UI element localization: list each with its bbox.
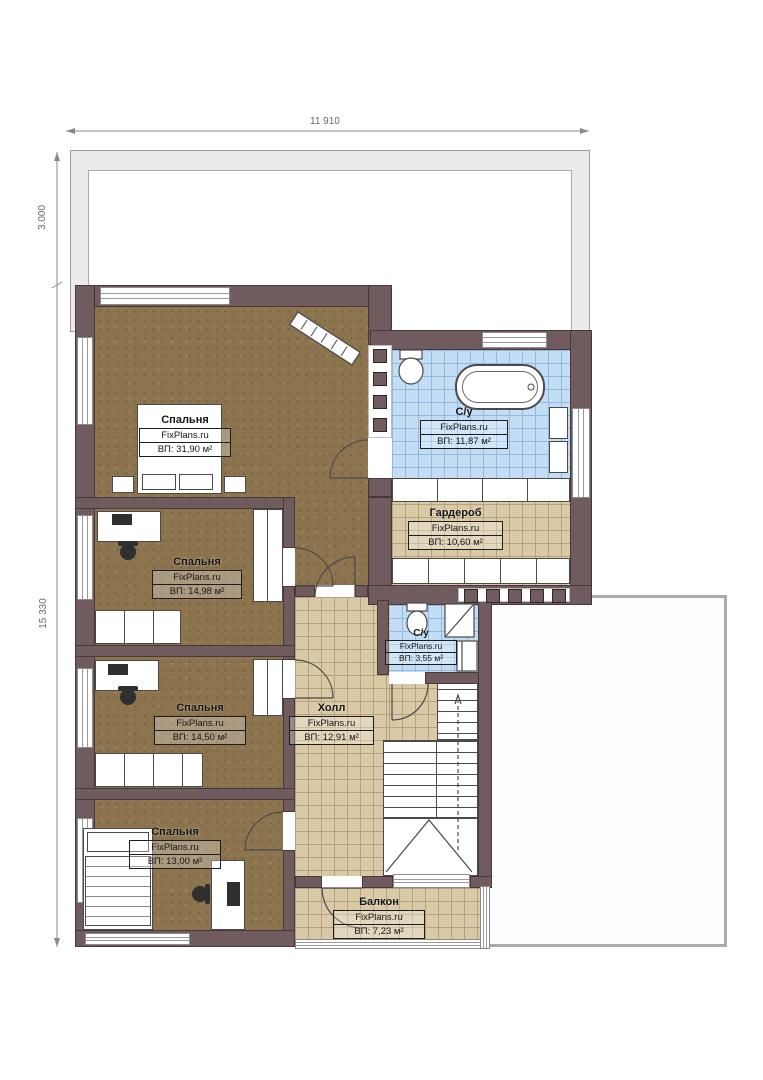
door-opening-bedroom-4 bbox=[283, 812, 295, 850]
dimension-left-lower-label: 15 330 bbox=[38, 598, 49, 629]
wall-bed3-bed4 bbox=[75, 788, 295, 800]
floor-bedroom-1 bbox=[95, 307, 368, 497]
room-area: ВП: 7,23 м² bbox=[334, 924, 424, 938]
wardrobe-row-top bbox=[392, 478, 570, 502]
room-name: С/у bbox=[385, 628, 457, 639]
window-bathroom-1-right bbox=[572, 408, 590, 498]
vent-icon bbox=[486, 589, 500, 603]
window-bedroom-3-left bbox=[77, 668, 93, 748]
wall-bed2-bed3 bbox=[75, 645, 295, 657]
room-label-bathroom-1: С/у FixPlans.ru ВП: 11,87 м² bbox=[420, 406, 508, 449]
room-name: Спальня bbox=[154, 702, 246, 715]
room-name: Спальня bbox=[129, 826, 221, 839]
room-info-box: FixPlans.ru ВП: 10,60 м² bbox=[408, 521, 503, 550]
dresser bbox=[95, 753, 203, 787]
room-label-wardrobe: Гардероб FixPlans.ru ВП: 10,60 м² bbox=[408, 507, 503, 550]
wall-balcony-b bbox=[362, 876, 393, 888]
stairs-upper-flight bbox=[437, 677, 478, 740]
room-area: ВП: 13,00 м² bbox=[130, 854, 220, 868]
wall-nook-b bbox=[355, 585, 368, 597]
desk bbox=[95, 660, 159, 691]
door-opening-nook bbox=[315, 585, 355, 597]
room-info-box: FixPlans.ru ВП: 14,98 м² bbox=[152, 570, 242, 599]
room-area: ВП: 11,87 м² bbox=[421, 434, 507, 448]
wall-hall-a bbox=[283, 497, 295, 548]
room-name: Гардероб bbox=[408, 507, 503, 520]
room-brand: FixPlans.ru bbox=[386, 641, 456, 652]
room-brand: FixPlans.ru bbox=[140, 429, 230, 442]
wardrobe-row-bottom bbox=[392, 558, 570, 584]
room-name: Спальня bbox=[152, 556, 242, 569]
room-info-box: FixPlans.ru ВП: 14,50 м² bbox=[154, 716, 246, 745]
window-bathroom-1-top bbox=[482, 332, 547, 348]
dimension-left-upper-label: 3.000 bbox=[37, 205, 48, 230]
vent-icon bbox=[373, 395, 387, 409]
room-label-bathroom-2: С/у FixPlans.ru ВП: 3,55 м² bbox=[385, 628, 457, 665]
vent-shaft-column bbox=[368, 345, 392, 438]
wardrobe-cabinet bbox=[253, 509, 283, 602]
room-info-box: FixPlans.ru ВП: 13,00 м² bbox=[129, 840, 221, 869]
nightstand bbox=[112, 476, 134, 493]
door-opening-bathroom-2 bbox=[389, 672, 425, 684]
window-stairwell-bottom bbox=[393, 874, 470, 888]
wall-nook-a bbox=[295, 585, 315, 597]
room-info-box: FixPlans.ru ВП: 12,91 м² bbox=[289, 716, 374, 745]
wall-bath1-top bbox=[370, 330, 592, 350]
room-label-bedroom-2: Спальня FixPlans.ru ВП: 14,98 м² bbox=[152, 556, 242, 599]
dimension-top-label: 11 910 bbox=[310, 116, 340, 127]
dresser bbox=[95, 610, 181, 644]
window-bedroom-2-left bbox=[77, 515, 93, 600]
room-area: ВП: 10,60 м² bbox=[409, 535, 502, 549]
stairs-void bbox=[383, 818, 478, 876]
door-opening-ensuite bbox=[368, 438, 392, 478]
wall-stairs-right bbox=[478, 600, 492, 888]
room-name: Холл bbox=[289, 702, 374, 715]
room-name: Балкон bbox=[333, 896, 425, 909]
floor-plan: 11 910 3.000 15 330 Спальня FixPlans.ru … bbox=[0, 0, 763, 1080]
nightstand bbox=[224, 476, 246, 493]
vent-icon bbox=[508, 589, 522, 603]
room-brand: FixPlans.ru bbox=[130, 841, 220, 854]
floor-stair-landing bbox=[389, 675, 437, 740]
room-brand: FixPlans.ru bbox=[155, 717, 245, 730]
door-opening-bedroom-2 bbox=[283, 548, 295, 586]
door-opening-bedroom-3 bbox=[283, 660, 295, 698]
stairs-lower-flight bbox=[383, 740, 478, 818]
vent-icon bbox=[373, 372, 387, 386]
room-area: ВП: 3,55 м² bbox=[386, 652, 456, 664]
bath-cabinet bbox=[549, 441, 568, 473]
vent-icon bbox=[464, 589, 478, 603]
room-label-bedroom-4: Спальня FixPlans.ru ВП: 13,00 м² bbox=[129, 826, 221, 869]
room-info-box: FixPlans.ru ВП: 3,55 м² bbox=[385, 640, 457, 665]
bathtub bbox=[455, 364, 545, 410]
vent-icon bbox=[530, 589, 544, 603]
wall-balcony-a bbox=[295, 876, 322, 888]
balcony-railing-bottom bbox=[295, 939, 489, 949]
terrace-roof bbox=[480, 595, 727, 947]
window-bedroom-4-bottom bbox=[85, 933, 190, 945]
vent-icon bbox=[373, 349, 387, 363]
door-opening-balcony bbox=[322, 876, 362, 888]
bath-cabinet bbox=[549, 407, 568, 439]
room-area: ВП: 31,90 м² bbox=[140, 442, 230, 456]
room-label-balcony: Балкон FixPlans.ru ВП: 7,23 м² bbox=[333, 896, 425, 939]
room-info-box: FixPlans.ru ВП: 11,87 м² bbox=[420, 420, 508, 449]
room-info-box: FixPlans.ru ВП: 7,23 м² bbox=[333, 910, 425, 939]
room-label-hall: Холл FixPlans.ru ВП: 12,91 м² bbox=[289, 702, 374, 745]
floor-bedroom-1-nook bbox=[295, 497, 368, 597]
room-label-bedroom-3: Спальня FixPlans.ru ВП: 14,50 м² bbox=[154, 702, 246, 745]
room-name: Спальня bbox=[139, 414, 231, 427]
vent-icon bbox=[552, 589, 566, 603]
pillow bbox=[142, 474, 176, 490]
room-brand: FixPlans.ru bbox=[334, 911, 424, 924]
room-area: ВП: 14,50 м² bbox=[155, 730, 245, 744]
room-brand: FixPlans.ru bbox=[409, 522, 502, 535]
room-area: ВП: 14,98 м² bbox=[153, 584, 241, 598]
room-brand: FixPlans.ru bbox=[290, 717, 373, 730]
wall-bath2-bottom bbox=[425, 672, 480, 684]
room-brand: FixPlans.ru bbox=[421, 421, 507, 434]
wall-bed1-bath1-lower bbox=[368, 478, 392, 497]
pillow bbox=[179, 474, 213, 490]
wardrobe-cabinet bbox=[253, 659, 283, 716]
balcony-railing-right bbox=[480, 886, 490, 949]
window-bedroom-1-top bbox=[100, 287, 230, 305]
window-bedroom-1-left bbox=[77, 337, 93, 425]
vent-shaft-row bbox=[458, 588, 570, 602]
room-name: С/у bbox=[420, 406, 508, 419]
room-label-bedroom-1: Спальня FixPlans.ru ВП: 31,90 м² bbox=[139, 414, 231, 457]
desk bbox=[97, 511, 161, 542]
room-info-box: FixPlans.ru ВП: 31,90 м² bbox=[139, 428, 231, 457]
vent-icon bbox=[373, 418, 387, 432]
stairs-stringer bbox=[436, 740, 437, 818]
wall-bed1-bed2 bbox=[75, 497, 295, 509]
room-brand: FixPlans.ru bbox=[153, 571, 241, 584]
desk bbox=[211, 860, 245, 930]
room-area: ВП: 12,91 м² bbox=[290, 730, 373, 744]
